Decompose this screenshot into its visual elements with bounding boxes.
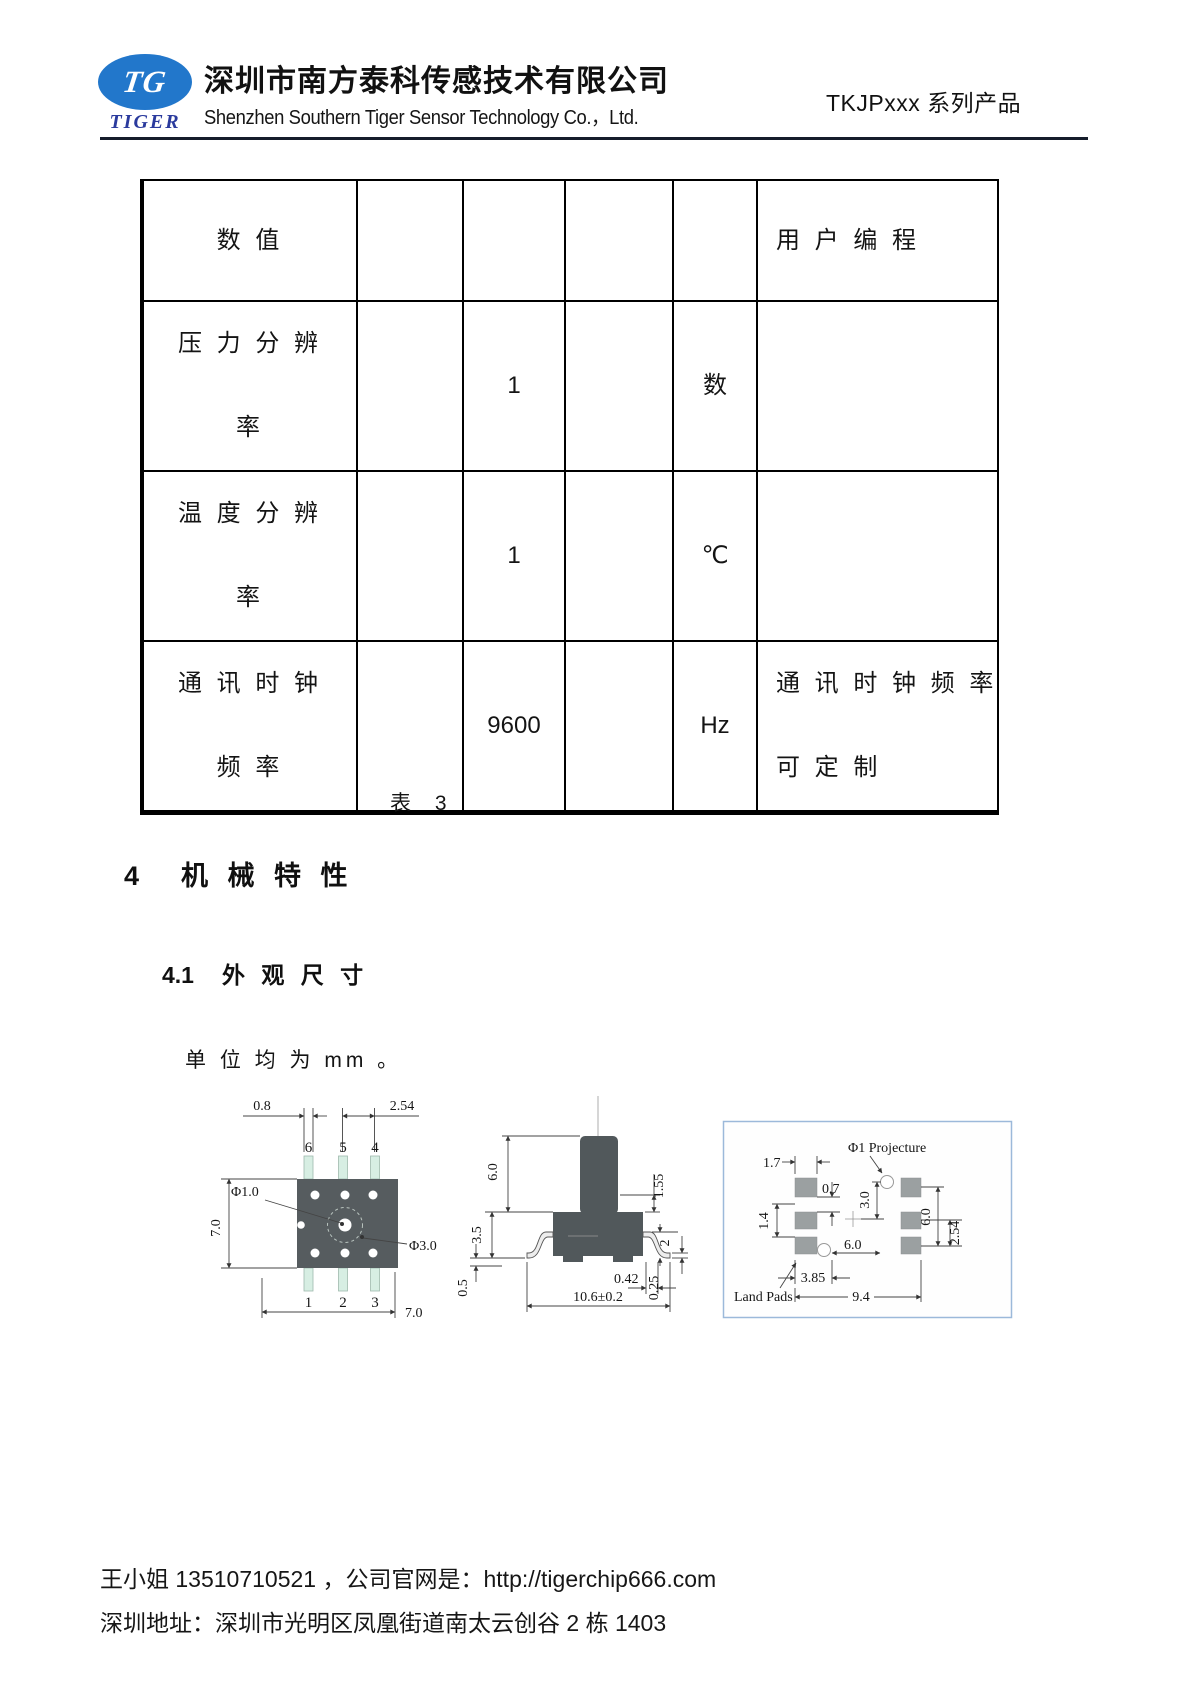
pin-number: 6 xyxy=(305,1140,313,1156)
company-website-link[interactable]: http://tigerchip666.com xyxy=(484,1566,717,1592)
cell-note: 用 户 编 程 xyxy=(757,180,998,301)
dim-label: 7.0 xyxy=(405,1306,423,1321)
company-name-en: Shenzhen Southern Tiger Sensor Technolog… xyxy=(204,101,638,130)
logo-monogram: TG xyxy=(121,64,169,100)
dim-label: 1.55 xyxy=(652,1174,667,1199)
footer-contact-line: 王小姐 13510710521 ，公司官网是：http://tigerchip6… xyxy=(100,1560,716,1594)
dim-label: 2.54 xyxy=(390,1099,415,1114)
pin-number: 5 xyxy=(339,1140,347,1156)
table-row: 压 力 分 辨 率 1 数 xyxy=(142,301,998,471)
cell-value: 1 xyxy=(463,301,565,471)
logo-wordmark: TIGER xyxy=(98,111,192,134)
header-divider xyxy=(100,137,1088,140)
dim-label: 0.42 xyxy=(614,1272,639,1287)
table-row: 温 度 分 辨 率 1 ℃ xyxy=(142,471,998,641)
cell-empty xyxy=(565,471,673,641)
dim-label: 7.0 xyxy=(209,1219,224,1237)
cell-param: 通 讯 时 钟 频 率 xyxy=(142,641,357,813)
dim-label: 6.0 xyxy=(844,1238,862,1253)
cell-empty xyxy=(565,641,673,813)
dim-label: 0.5 xyxy=(456,1279,471,1297)
table-caption: 表 3 xyxy=(390,787,456,817)
figure-land-pads: Φ1 Projecture 1.7 0.7 1.4 3.0 6.0 3.85 9… xyxy=(722,1120,1014,1320)
cell-note xyxy=(757,301,998,471)
footer-address-line: 深圳地址：深圳市光明区凤凰街道南太云创谷 2 栋 1403 xyxy=(100,1604,666,1638)
cell-unit: Hz xyxy=(673,641,757,813)
cell-note xyxy=(757,471,998,641)
lead-left xyxy=(527,1232,553,1258)
dim-label: 6.0 xyxy=(919,1208,934,1226)
cell-value xyxy=(463,180,565,301)
cell-unit: ℃ xyxy=(673,471,757,641)
table-row: 通 讯 时 钟 频 率 9600 Hz 通 讯 时 钟 频 率 可 定 制 xyxy=(142,641,998,813)
cell-empty xyxy=(357,180,463,301)
cell-unit xyxy=(673,180,757,301)
cell-value: 9600 xyxy=(463,641,565,813)
figure-side-view: 6.0 3.5 0.5 1.55 2 0.25 0.42 10.6±0.2 xyxy=(430,1040,695,1332)
dim-label: 1.4 xyxy=(757,1212,772,1230)
cell-param: 温 度 分 辨 率 xyxy=(142,471,357,641)
company-logo-icon: TG xyxy=(98,54,192,110)
projection-hole xyxy=(881,1176,894,1189)
cell-note: 通 讯 时 钟 频 率 可 定 制 xyxy=(757,641,998,813)
dim-label: Φ1.0 xyxy=(231,1185,259,1200)
projection-hole xyxy=(818,1244,831,1257)
footer-contact-text: 王小姐 13510710521 ，公司官网是： xyxy=(100,1566,484,1592)
cell-empty xyxy=(565,301,673,471)
cell-empty xyxy=(357,471,463,641)
dim-label: 0.8 xyxy=(253,1099,271,1114)
cell-value: 1 xyxy=(463,471,565,641)
company-name-cn: 深圳市南方泰科传感技术有限公司 xyxy=(204,56,669,100)
table-row: 数 值 用 户 编 程 xyxy=(142,180,998,301)
pin-number: 1 xyxy=(305,1295,313,1311)
pin-number: 2 xyxy=(339,1295,347,1311)
dim-label: 10.6±0.2 xyxy=(573,1290,623,1305)
section-4-heading: 4机 械 特 性 xyxy=(124,854,354,893)
figure-top-view: 0.8 2.54 6 5 4 Φ1.0 7.0 Φ3.0 1 2 3 7.0 xyxy=(205,1040,455,1332)
cell-empty xyxy=(565,180,673,301)
pin-number: 4 xyxy=(371,1140,379,1156)
dim-label: 9.4 xyxy=(852,1290,870,1305)
section-4-1-heading: 4.1外 观 尺 寸 xyxy=(162,956,368,990)
section-4-1-title: 外 观 尺 寸 xyxy=(222,962,368,988)
dim-label: 3.85 xyxy=(801,1271,826,1286)
dim-label: 2 xyxy=(658,1240,673,1247)
land-pads-label: Land Pads xyxy=(734,1290,793,1305)
pin-number: 3 xyxy=(371,1295,379,1311)
projection-label: Φ1 Projecture xyxy=(848,1141,926,1156)
dim-label: 6.0 xyxy=(486,1163,501,1181)
dim-label: 2.54 xyxy=(948,1221,963,1246)
cell-param: 数 值 xyxy=(142,180,357,301)
dim-label: 3.0 xyxy=(858,1191,873,1209)
section-4-number: 4 xyxy=(124,861,139,891)
dim-label: 3.5 xyxy=(470,1226,485,1244)
cell-param: 压 力 分 辨 率 xyxy=(142,301,357,471)
dim-label: 1.7 xyxy=(763,1156,781,1171)
datasheet-page: TG TIGER 深圳市南方泰科传感技术有限公司 Shenzhen Southe… xyxy=(0,0,1190,1683)
section-4-1-number: 4.1 xyxy=(162,962,194,988)
pressure-port xyxy=(580,1136,618,1214)
cell-empty xyxy=(357,301,463,471)
section-4-title: 机 械 特 性 xyxy=(181,861,354,891)
cell-unit: 数 xyxy=(673,301,757,471)
dim-label: 0.25 xyxy=(647,1276,662,1301)
dim-label: 0.7 xyxy=(822,1182,840,1197)
spec-table: 数 值 用 户 编 程 压 力 分 辨 率 1 数 温 度 分 辨 率 1 xyxy=(140,179,999,815)
sensor-body-side xyxy=(553,1212,643,1256)
product-series-label: TKJPxxx 系列产品 xyxy=(826,84,1021,118)
